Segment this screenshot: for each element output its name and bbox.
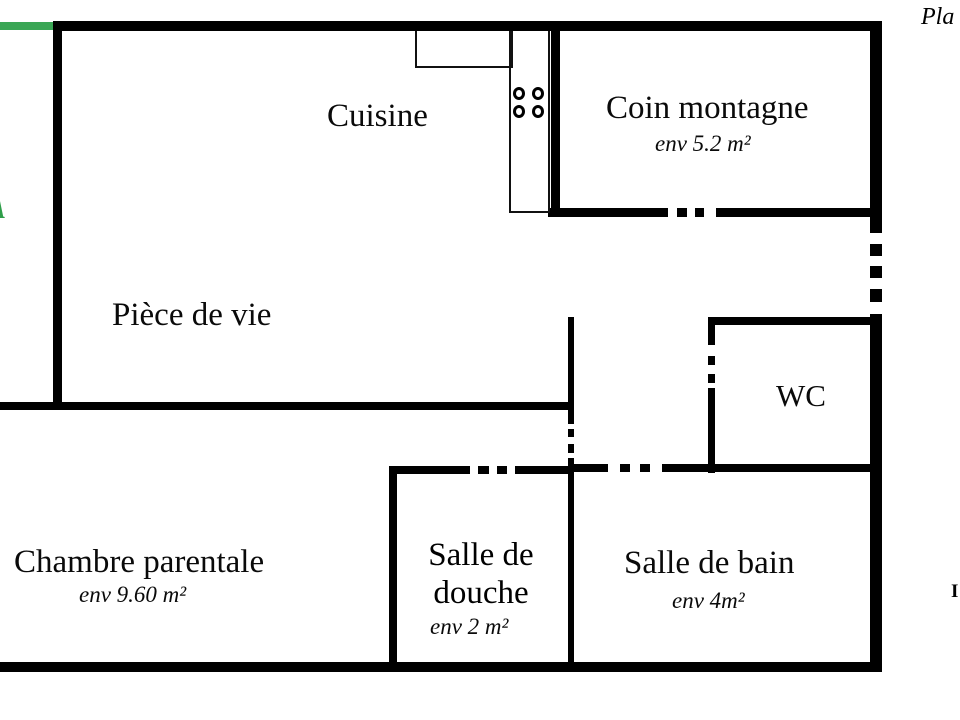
wall-salle-de-bain-top-right	[662, 464, 882, 472]
wall-wc-left-upper	[708, 317, 715, 345]
wall-salle-de-douche-top-right	[515, 466, 568, 474]
door-dash	[620, 464, 630, 472]
room-label-piece-de-vie: Pièce de vie	[112, 297, 271, 334]
room-label-salle-de-douche: Salle de douche	[405, 536, 557, 613]
wall-kitchen-divider	[551, 21, 560, 213]
stove-burner-icon	[513, 105, 525, 118]
wall-left	[53, 21, 62, 410]
room-area-salle-de-douche: env 2 m²	[430, 614, 508, 640]
stove-burner-icon	[532, 87, 544, 100]
wall-hall-divider-lower	[568, 458, 574, 662]
wall-wc-left-lower	[708, 388, 715, 473]
wall-top	[55, 21, 882, 31]
room-area-coin-montagne: env 5.2 m²	[655, 131, 751, 157]
room-label-chambre-parentale: Chambre parentale	[14, 544, 264, 581]
room-label-salle-de-bain: Salle de bain	[624, 545, 794, 582]
wall-wc-top	[708, 317, 882, 325]
door-dash	[870, 289, 882, 302]
wall-right-lower	[870, 314, 882, 672]
door-dash	[870, 266, 882, 278]
green-watermark-fragments: r e r s A t i . e	[0, 46, 13, 386]
floor-plan: r e r s A t i . e Pla I	[0, 0, 960, 720]
door-dash	[478, 466, 489, 474]
door-dash	[640, 464, 650, 472]
door-dash	[695, 208, 704, 217]
room-area-chambre-parentale: env 9.60 m²	[79, 582, 186, 608]
wall-salle-de-douche-top-left	[389, 466, 470, 474]
kitchen-counter	[415, 31, 513, 68]
room-label-coin-montagne: Coin montagne	[606, 90, 809, 127]
room-label-cuisine: Cuisine	[327, 98, 428, 135]
door-dash	[708, 356, 715, 365]
plan-title-cropped: Pla	[921, 4, 954, 31]
door-dash	[568, 429, 574, 437]
door-dash	[870, 244, 882, 256]
wall-coin-montagne-bottom-right	[716, 208, 882, 217]
door-dash	[568, 444, 574, 453]
green-accent-bar	[0, 22, 57, 30]
wall-salle-de-douche-left	[389, 466, 397, 672]
wall-right-upper	[870, 21, 882, 233]
room-label-wc: WC	[776, 378, 826, 414]
wall-bottom	[0, 662, 882, 672]
stove-burner-icon	[532, 105, 544, 118]
wall-hall-divider-upper	[568, 317, 574, 424]
wall-coin-montagne-bottom	[548, 208, 668, 217]
watermark-fragment: A	[0, 194, 6, 224]
wall-mid-left-horizontal	[0, 402, 570, 410]
room-area-salle-de-bain: env 4m²	[672, 588, 745, 614]
kitchen-counter-strip	[509, 31, 550, 213]
cropped-letter-fragment: I	[951, 581, 960, 599]
door-dash	[677, 208, 687, 217]
wall-salle-de-bain-top-left	[573, 464, 608, 472]
stove-burner-icon	[513, 87, 525, 100]
door-dash	[708, 374, 715, 383]
door-dash	[497, 466, 507, 474]
